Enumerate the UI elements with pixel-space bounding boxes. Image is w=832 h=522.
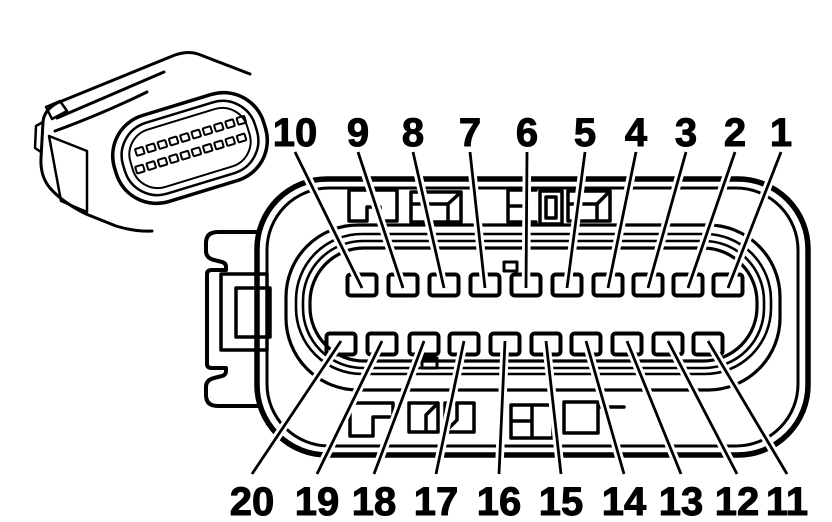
leader-line-2: [688, 152, 735, 288]
pin-number-3: 3: [675, 111, 697, 155]
pin-number-16: 16: [477, 480, 522, 522]
leader-lines: [252, 152, 787, 474]
connector-pinout-figure: 1098765432120191817161514131211: [0, 0, 832, 522]
pin-number-14: 14: [602, 480, 647, 522]
pin-number-19: 19: [295, 480, 340, 522]
pin-number-11: 11: [766, 480, 808, 522]
pin-number-20: 20: [230, 480, 275, 522]
pin-number-4: 4: [625, 111, 648, 155]
pin-number-7: 7: [459, 111, 481, 155]
leader-line-6: [526, 152, 527, 288]
pin-number-2: 2: [724, 111, 746, 155]
cavity-index-notch: [504, 262, 517, 271]
leader-line-halos: [252, 152, 787, 474]
connector-face-view: 1098765432120191817161514131211: [206, 111, 808, 522]
diagram-svg: 1098765432120191817161514131211: [0, 0, 832, 522]
pin-numbers: 1098765432120191817161514131211: [230, 111, 808, 522]
mounting-tab: [206, 232, 270, 406]
mounting-tab-outline: [206, 232, 258, 406]
left-panel: [49, 136, 87, 212]
keying-feature: [511, 405, 553, 438]
pin-number-18: 18: [352, 480, 397, 522]
leader-line-7: [470, 152, 485, 288]
pin-number-17: 17: [414, 480, 459, 522]
leader-line-8: [413, 152, 444, 288]
pin-number-12: 12: [715, 480, 760, 522]
keying-feature: [508, 190, 536, 222]
pin-number-10: 10: [273, 111, 318, 155]
mounting-tab-slot-inner: [236, 288, 270, 337]
pin-number-13: 13: [659, 480, 704, 522]
pin-number-6: 6: [516, 111, 538, 155]
cavity-index-notch: [422, 358, 437, 368]
leader-line-3: [648, 152, 686, 288]
pin-number-8: 8: [402, 111, 424, 155]
keying-feature: [540, 191, 562, 224]
seal-ring-outer: [286, 225, 780, 390]
pin-rows: [327, 275, 743, 355]
keying-feature: [409, 403, 438, 432]
pin-number-5: 5: [574, 111, 596, 155]
leader-line-4: [608, 152, 636, 288]
connector-3d-view: [35, 53, 278, 232]
pin-number-1: 1: [770, 111, 792, 155]
pin-number-15: 15: [539, 480, 584, 522]
pin-number-9: 9: [347, 111, 369, 155]
keying-feature: [411, 192, 461, 222]
